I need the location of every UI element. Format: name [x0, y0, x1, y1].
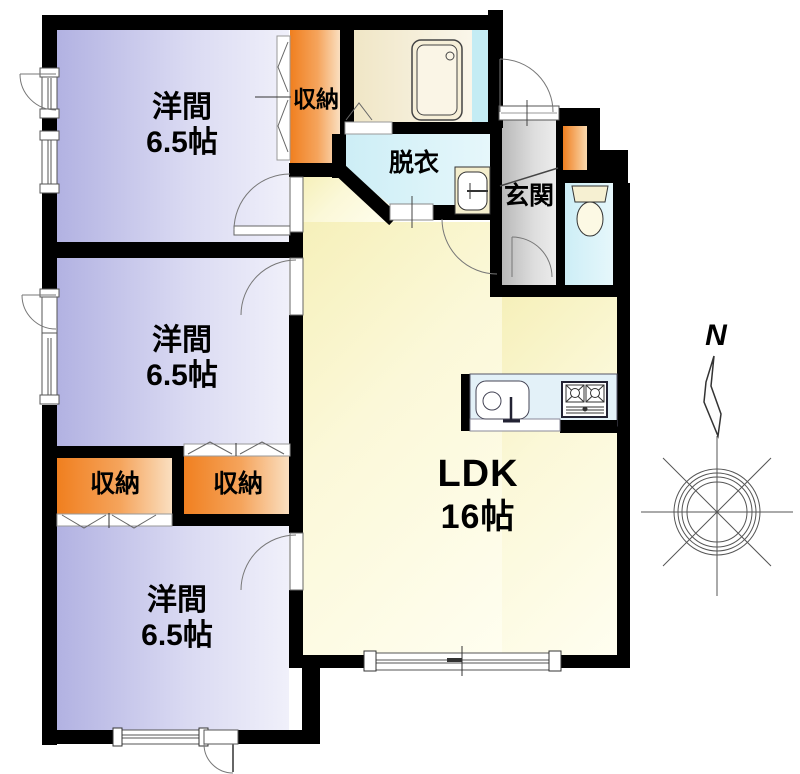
- room1-name: 洋間: [152, 91, 212, 124]
- ldk-name: LDK: [437, 453, 518, 495]
- closet-top-label: 収納: [288, 86, 344, 113]
- ldk-fill-main: [303, 222, 502, 655]
- ldk-label: LDK 16帖: [398, 452, 558, 537]
- closet-top-name: 収納: [293, 86, 339, 112]
- room3-name: 洋間: [147, 584, 207, 617]
- closet-left-name: 収納: [90, 470, 140, 498]
- entrance-name: 玄関: [504, 182, 554, 210]
- compass-needle: [704, 356, 721, 436]
- dressing-label: 脱衣: [378, 149, 450, 179]
- room2-name: 洋間: [152, 324, 212, 357]
- north-letter: N: [705, 319, 727, 352]
- bathroom-fill: [354, 30, 472, 122]
- entrance-closet: [563, 126, 587, 170]
- closet-left-label: 収納: [67, 470, 163, 500]
- left-wall-windows: [20, 68, 59, 404]
- room1-area: 6.5帖: [97, 125, 267, 160]
- closet-right-label: 収納: [190, 470, 286, 500]
- room3-label: 洋間 6.5帖: [92, 583, 262, 654]
- entrance-label: 玄関: [500, 182, 558, 212]
- bathroom-window-strip: [472, 28, 488, 122]
- ldk-area: 16帖: [398, 497, 558, 537]
- toilet-fill: [565, 183, 613, 285]
- room1-label: 洋間 6.5帖: [97, 90, 267, 161]
- room3-area: 6.5帖: [92, 618, 262, 653]
- compass-north-label: N: [698, 318, 734, 353]
- dressing-name: 脱衣: [389, 149, 439, 177]
- floor-plan: 洋間 6.5帖 洋間 6.5帖 洋間 6.5帖 LDK 16帖 収納 収納 収納…: [0, 0, 800, 774]
- room3-window-and-door: [113, 728, 238, 773]
- compass-rose: [641, 356, 793, 596]
- room2-label: 洋間 6.5帖: [97, 323, 267, 394]
- room2-area: 6.5帖: [97, 358, 267, 393]
- closet-right-name: 収納: [213, 470, 263, 498]
